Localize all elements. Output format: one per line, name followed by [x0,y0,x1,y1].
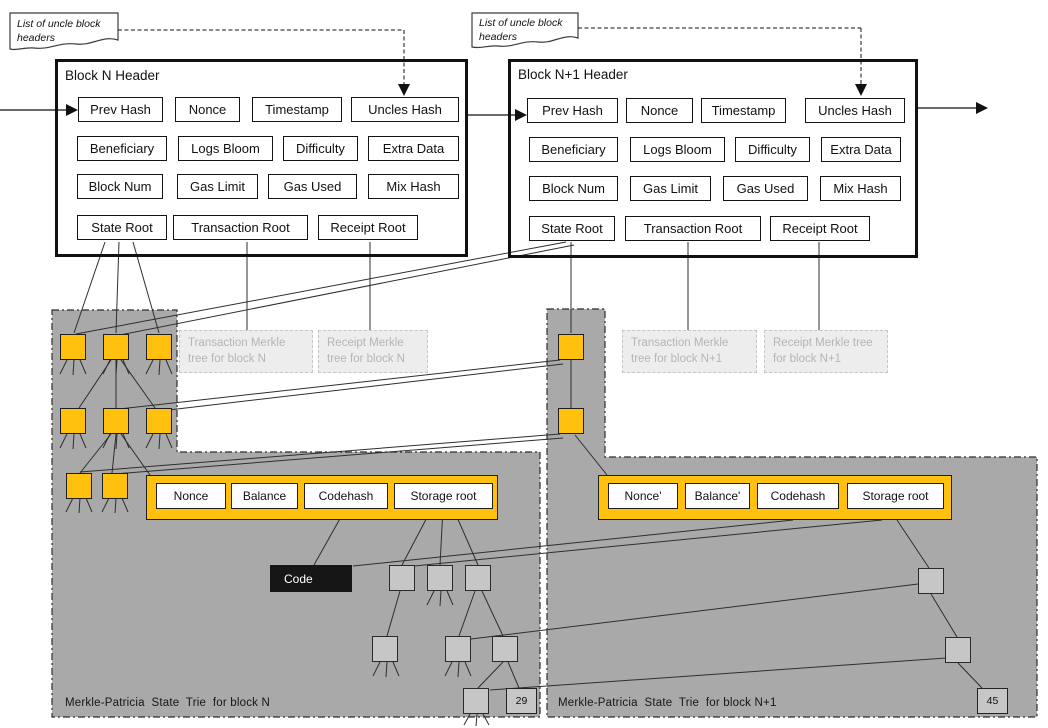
field-n1-gas-limit: Gas Limit [630,176,711,201]
storage-node [372,636,398,662]
field-n1-difficulty: Difficulty [735,137,810,162]
field-n1-mix-hash: Mix Hash [820,176,901,201]
field-n1-logs-bloom: Logs Bloom [630,137,725,162]
account-node-n: Nonce Balance Codehash Storage root [146,475,498,520]
ethereum-block-structure-diagram: List of uncle block headers List of uncl… [0,0,1048,728]
trie-node [146,334,172,360]
state-trie-label-n1: Merkle-Patricia State Trie for block N+1 [558,697,777,709]
trie-node [102,473,128,499]
field-n-block-num: Block Num [77,174,163,199]
trie-node [66,473,92,499]
receipt-merkle-box-n: Receipt Merkle tree for block N [318,330,428,373]
trie-node [103,334,129,360]
storage-node [389,565,415,591]
field-n1-extra-data: Extra Data [821,137,901,162]
storage-node-n1 [945,637,971,663]
field-n-prev-hash: Prev Hash [78,97,163,122]
trie-node [103,408,129,434]
storage-node [463,688,489,714]
state-trie-label-n: Merkle-Patricia State Trie for block N [65,697,270,709]
account-n1-codehash: Codehash [757,483,839,509]
field-n1-timestamp: Timestamp [701,98,786,123]
field-n-extra-data: Extra Data [368,136,459,161]
tx-merkle-box-n: Transaction Merkle tree for block N [179,330,313,373]
arrowhead-next-block [976,102,988,114]
field-n1-transaction-root: Transaction Root [625,216,761,241]
field-n-difficulty: Difficulty [283,136,358,161]
account-node-n1: Nonce' Balance' Codehash Storage root [598,475,952,520]
receipt-merkle-box-n1: Receipt Merkle tree for block N+1 [764,330,888,373]
field-n-gas-limit: Gas Limit [177,174,258,199]
field-n-gas-used: Gas Used [268,174,357,199]
trie-node-n1 [558,334,584,360]
account-n1-balance: Balance' [685,483,750,509]
field-n-transaction-root: Transaction Root [173,215,308,240]
storage-node [492,636,518,662]
account-n-nonce: Nonce [156,483,226,509]
block-n-title: Block N Header [65,68,160,83]
uncle-note-n1: List of uncle block headers [479,16,575,44]
field-n-mix-hash: Mix Hash [368,174,459,199]
account-n-storage-root: Storage root [394,483,493,509]
storage-leaf-n1: 45 [977,688,1008,714]
field-n-timestamp: Timestamp [252,97,342,122]
account-n-codehash: Codehash [304,483,388,509]
block-n1-title: Block N+1 Header [518,67,628,82]
field-n-logs-bloom: Logs Bloom [178,136,273,161]
storage-node-n1 [918,568,944,594]
field-n-nonce: Nonce [175,97,240,122]
storage-node [427,565,453,591]
field-n-state-root: State Root [77,215,167,240]
account-n-balance: Balance [231,483,298,509]
field-n1-gas-used: Gas Used [723,176,808,201]
trie-node-n1 [558,408,584,434]
field-n1-receipt-root: Receipt Root [770,216,870,241]
field-n1-beneficiary: Beneficiary [529,137,618,162]
field-n1-state-root: State Root [529,216,615,241]
storage-node [445,636,471,662]
tx-merkle-box-n1: Transaction Merkle tree for block N+1 [622,330,757,373]
trie-node [146,408,172,434]
field-n1-uncles-hash: Uncles Hash [805,98,905,123]
field-n-receipt-root: Receipt Root [318,215,418,240]
field-n1-nonce: Nonce [626,98,693,123]
trie-node [60,334,86,360]
uncle-note-n: List of uncle block headers [17,17,113,45]
storage-leaf-n: 29 [506,688,537,714]
field-n-uncles-hash: Uncles Hash [351,97,459,122]
field-n1-block-num: Block Num [529,176,618,201]
code-box: Code [270,565,352,592]
account-n1-nonce: Nonce' [608,483,678,509]
field-n1-prev-hash: Prev Hash [527,98,618,123]
trie-node [60,408,86,434]
field-n-beneficiary: Beneficiary [77,136,167,161]
storage-node [465,565,491,591]
account-n1-storage-root: Storage root [847,483,944,509]
